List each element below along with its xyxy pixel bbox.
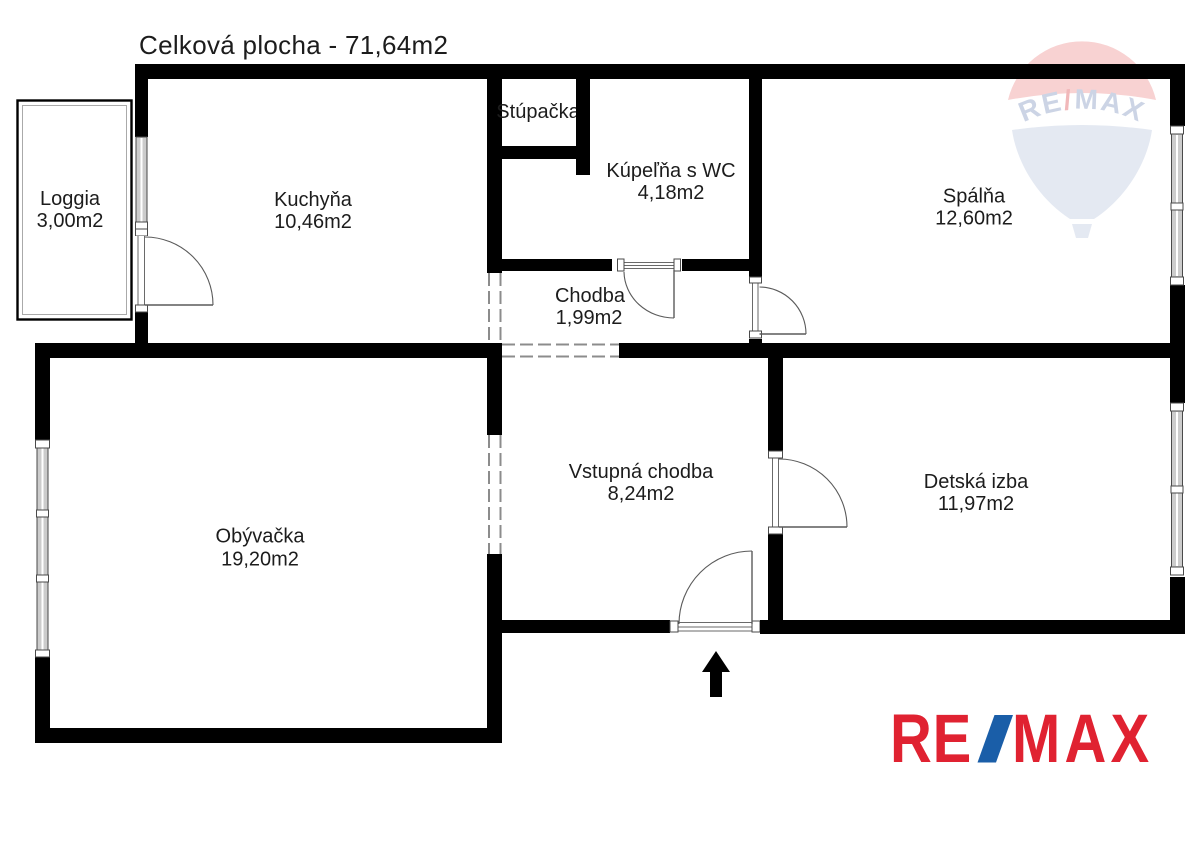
svg-text:12,60m2: 12,60m2 [935,208,1013,230]
svg-text:10,46m2: 10,46m2 [274,211,352,233]
svg-text:RE: RE [890,699,972,777]
svg-text:Spálňa: Spálňa [943,186,1006,208]
svg-text:Celková plocha - 71,64m2: Celková plocha - 71,64m2 [139,30,448,60]
svg-text:3,00m2: 3,00m2 [37,210,104,232]
svg-text:Chodba: Chodba [555,285,626,307]
svg-text:4,18m2: 4,18m2 [638,182,705,204]
svg-text:Vstupná chodba: Vstupná chodba [569,461,714,483]
svg-text:1,99m2: 1,99m2 [556,307,623,329]
svg-text:Stúpačka: Stúpačka [496,101,580,123]
svg-text:Loggia: Loggia [40,188,101,210]
svg-text:11,97m2: 11,97m2 [938,493,1014,515]
svg-text:Kúpeľňa s WC: Kúpeľňa s WC [606,160,735,182]
svg-text:8,24m2: 8,24m2 [608,483,675,505]
svg-text:MAX: MAX [1012,699,1153,777]
svg-text:19,20m2: 19,20m2 [221,549,299,571]
svg-text:Detská izba: Detská izba [924,471,1029,493]
svg-text:Obývačka: Obývačka [216,526,306,548]
svg-text:Kuchyňa: Kuchyňa [274,189,353,211]
